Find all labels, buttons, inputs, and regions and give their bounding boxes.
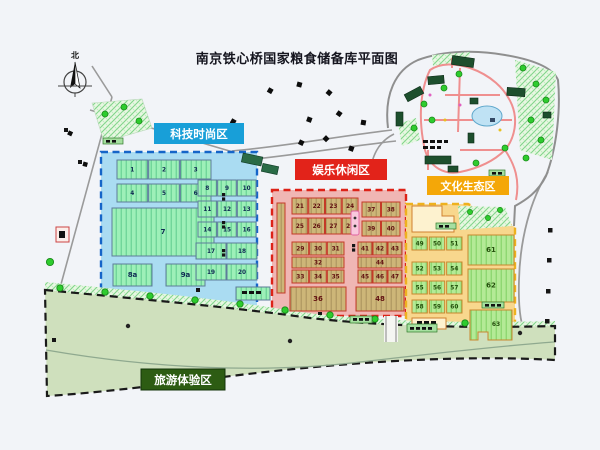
building-label: 19 bbox=[207, 270, 215, 276]
site-plan-svg: 12345678a9a89101112131415161718192021222… bbox=[0, 0, 600, 450]
building-label: 23 bbox=[329, 204, 337, 210]
building-label: 26 bbox=[313, 224, 321, 230]
building-label: 18 bbox=[238, 249, 246, 255]
road-name-character bbox=[547, 258, 552, 263]
building-label: 20 bbox=[238, 270, 246, 276]
building-label: 35 bbox=[332, 275, 340, 281]
building-label: 24 bbox=[346, 204, 354, 210]
building-label: 38 bbox=[387, 208, 395, 214]
building-label: 51 bbox=[450, 242, 458, 248]
building-label: 21 bbox=[296, 204, 304, 210]
building-label: 27 bbox=[329, 224, 337, 230]
building-label: 49 bbox=[416, 242, 424, 248]
building-label: 61 bbox=[486, 246, 496, 254]
building-label: 22 bbox=[313, 204, 321, 210]
building-label: 36 bbox=[313, 295, 323, 303]
building-label: 16 bbox=[243, 228, 251, 234]
zone-fun-label-text: 娱乐休闲区 bbox=[312, 163, 370, 177]
building-label: 11 bbox=[203, 207, 211, 213]
zone-tourism-label-text: 旅游体验区 bbox=[154, 373, 212, 387]
gate-chip bbox=[436, 223, 456, 229]
building-label: 25 bbox=[296, 224, 304, 230]
culture-hatch bbox=[458, 206, 512, 230]
building-label: 50 bbox=[433, 242, 441, 248]
building-label: 10 bbox=[243, 186, 251, 192]
building-label: 13 bbox=[243, 207, 251, 213]
building-label: 63 bbox=[492, 321, 500, 328]
compass-north-label: 北 bbox=[71, 50, 79, 60]
building-label: 54 bbox=[450, 267, 458, 273]
gate-chip bbox=[482, 302, 504, 308]
road-name-character bbox=[546, 289, 551, 294]
building-label: 2 bbox=[162, 168, 166, 174]
building-label: 17 bbox=[207, 249, 215, 255]
building-label: 8 bbox=[205, 186, 209, 192]
building-label: 43 bbox=[391, 247, 399, 253]
road-name-character bbox=[545, 319, 550, 324]
building-label: 31 bbox=[332, 247, 340, 253]
building-label: 9 bbox=[225, 186, 229, 192]
building-label: 53 bbox=[433, 267, 441, 273]
building-label: 29 bbox=[296, 247, 304, 253]
building-label: 30 bbox=[314, 247, 322, 253]
building-label: 58 bbox=[416, 305, 424, 311]
red-zone-kiosk bbox=[351, 211, 359, 235]
building-label: 41 bbox=[361, 247, 369, 253]
bridge-crossing bbox=[384, 316, 398, 342]
building-label: 7 bbox=[161, 228, 166, 236]
building-label: 12 bbox=[223, 207, 231, 213]
building-label: 60 bbox=[450, 305, 458, 311]
compass-needle-dark bbox=[70, 62, 75, 88]
building-label: 42 bbox=[376, 247, 384, 253]
building-label: 6 bbox=[194, 191, 198, 197]
zone-tourism-label: 旅游体验区 bbox=[141, 369, 225, 390]
building-label: 3 bbox=[194, 168, 198, 174]
building-label: 45 bbox=[361, 275, 369, 281]
compass-needle-light bbox=[75, 62, 80, 88]
building-label: 1 bbox=[130, 168, 134, 174]
building-label: 44 bbox=[376, 261, 384, 267]
road-middle-upper bbox=[232, 130, 392, 151]
building-label: 62 bbox=[486, 282, 496, 290]
building-label: 8a bbox=[128, 271, 138, 279]
zone-culture-label: 文化生态区 bbox=[427, 176, 509, 195]
gate-chip bbox=[489, 170, 505, 176]
gate-chip bbox=[350, 316, 372, 323]
zone-tech-label-text: 科技时尚区 bbox=[170, 127, 228, 141]
building-label: 37 bbox=[367, 208, 375, 214]
building-label: 34 bbox=[314, 275, 322, 281]
building-label: 5 bbox=[162, 191, 166, 197]
building-label: 48 bbox=[375, 295, 385, 303]
building-label: 57 bbox=[450, 286, 458, 292]
road-left-stub bbox=[92, 66, 112, 97]
zone-tech-label: 科技时尚区 bbox=[154, 123, 244, 144]
building-label: 9a bbox=[181, 271, 191, 279]
building-vertical-strip bbox=[277, 203, 285, 293]
building-label: 55 bbox=[416, 286, 424, 292]
building-label: 52 bbox=[416, 267, 424, 273]
left-road-hut bbox=[56, 227, 69, 242]
park-hatch-right bbox=[515, 60, 556, 160]
road-right bbox=[519, 172, 548, 345]
park-text-marks bbox=[423, 140, 448, 149]
site-plan-page: 12345678a9a89101112131415161718192021222… bbox=[0, 0, 600, 450]
zone-culture-label-text: 文化生态区 bbox=[441, 179, 496, 193]
building-slanted-b bbox=[261, 163, 278, 174]
building-label: 40 bbox=[387, 227, 395, 233]
building-label: 4 bbox=[130, 191, 134, 197]
building-label: 32 bbox=[314, 261, 322, 267]
building-label: 47 bbox=[391, 275, 399, 281]
gate-chip bbox=[407, 324, 437, 332]
building-label: 33 bbox=[296, 275, 304, 281]
zone-fun-label: 娱乐休闲区 bbox=[295, 159, 387, 180]
road-name-character bbox=[548, 228, 553, 233]
building-label: 59 bbox=[433, 305, 441, 311]
plan-title: 南京铁心桥国家粮食储备库平面图 bbox=[196, 51, 399, 67]
building-label: 39 bbox=[367, 227, 375, 233]
pond-pavilion bbox=[490, 118, 495, 122]
building-label: 14 bbox=[203, 228, 211, 234]
building-label: 46 bbox=[376, 275, 384, 281]
pond bbox=[472, 106, 502, 126]
building-label: 56 bbox=[433, 286, 441, 292]
compass: 北 bbox=[58, 50, 92, 97]
